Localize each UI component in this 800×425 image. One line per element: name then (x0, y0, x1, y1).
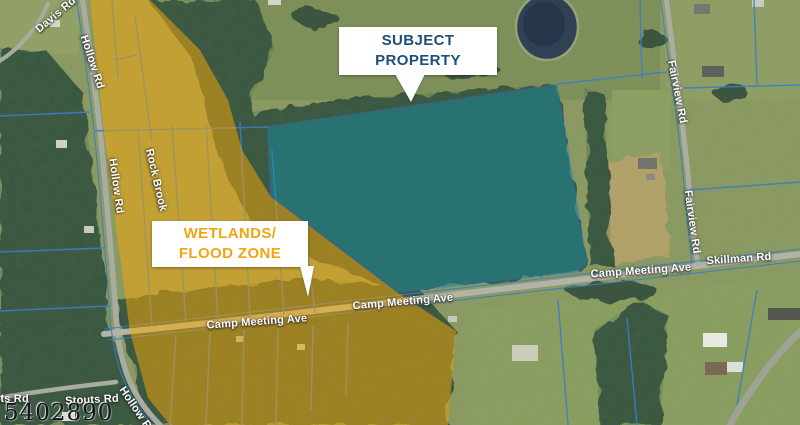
wetlands-line2: FLOOD ZONE (179, 244, 281, 264)
subject-property-line1: SUBJECT (382, 31, 455, 51)
wetlands-callout-pointer-icon (300, 266, 314, 297)
subject-callout-pointer-icon (395, 74, 425, 102)
wetlands-line1: WETLANDS/ (184, 224, 277, 244)
subject-property-callout: SUBJECT PROPERTY (339, 27, 497, 75)
wetlands-callout: WETLANDS/ FLOOD ZONE (152, 221, 308, 267)
aerial-map-screenshot: Davis Rd Hollow Rd Hollow Rd Rock Brook … (0, 0, 800, 425)
subject-property-line2: PROPERTY (375, 51, 461, 71)
photo-id-watermark: 5402890 (4, 400, 113, 425)
